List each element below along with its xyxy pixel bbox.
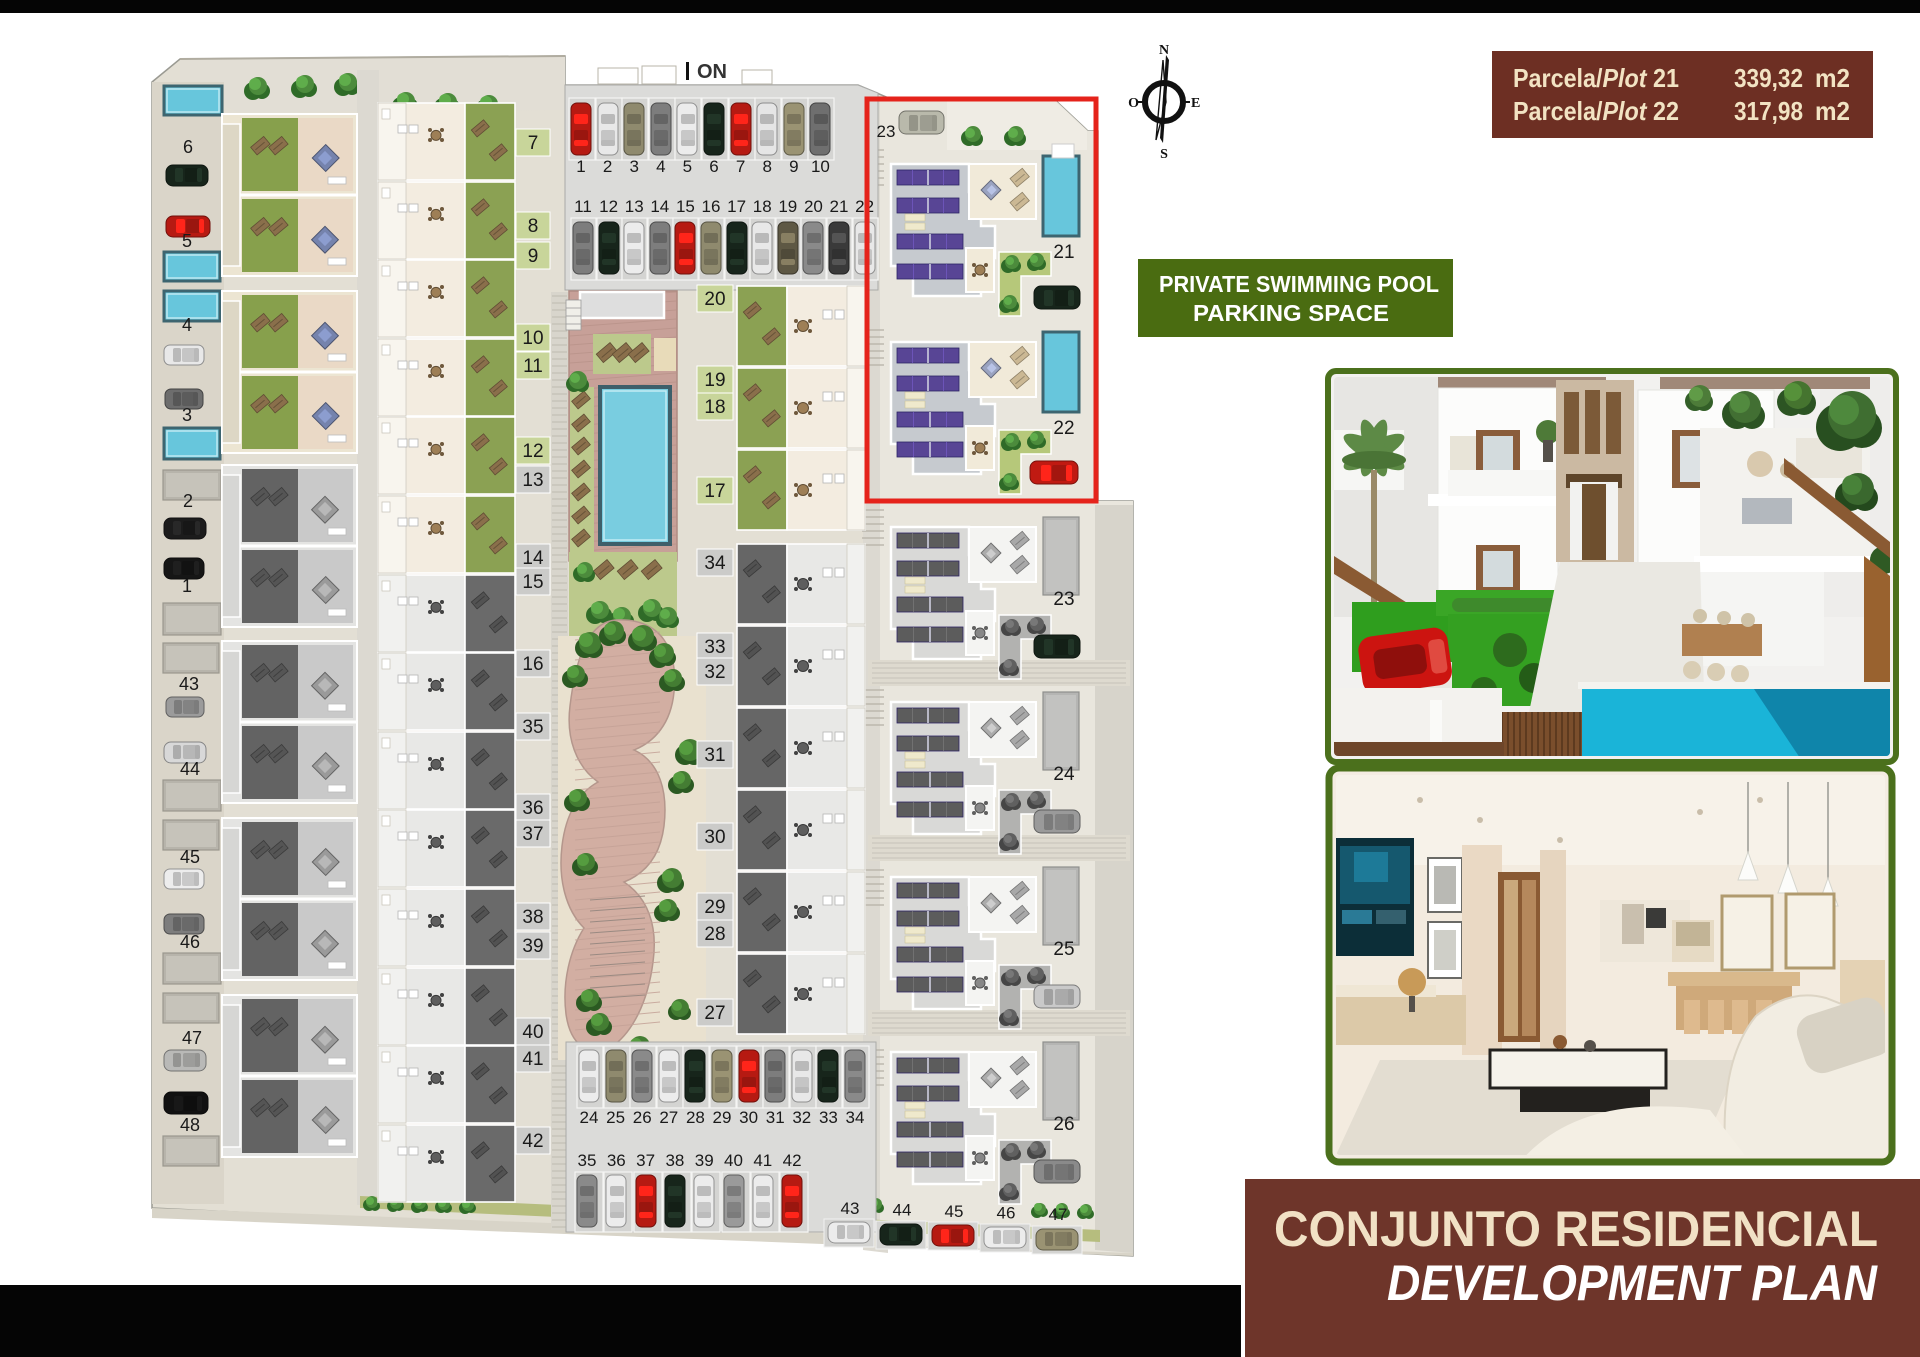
svg-text:11: 11 [574, 197, 592, 216]
svg-text:25: 25 [1053, 939, 1074, 960]
svg-text:5: 5 [683, 157, 692, 176]
svg-text:32: 32 [704, 662, 725, 683]
svg-text:339,32: 339,32 [1734, 63, 1803, 93]
svg-text:Parcela/Plot 22: Parcela/Plot 22 [1513, 96, 1679, 126]
svg-text:29: 29 [713, 1108, 732, 1127]
svg-text:37: 37 [636, 1151, 655, 1170]
svg-text:41: 41 [753, 1151, 772, 1170]
svg-text:33: 33 [704, 637, 725, 658]
svg-text:20: 20 [804, 197, 823, 216]
svg-text:42: 42 [783, 1151, 802, 1170]
svg-text:39: 39 [695, 1151, 714, 1170]
svg-text:22: 22 [1053, 418, 1074, 439]
svg-text:28: 28 [704, 924, 725, 945]
svg-text:12: 12 [599, 197, 618, 216]
svg-text:m2: m2 [1815, 96, 1850, 126]
svg-text:46: 46 [180, 932, 200, 952]
svg-text:44: 44 [180, 759, 200, 779]
svg-text:PARKING SPACE: PARKING SPACE [1193, 300, 1389, 326]
svg-text:25: 25 [606, 1108, 625, 1127]
svg-text:45: 45 [945, 1202, 964, 1221]
svg-text:17: 17 [704, 481, 725, 502]
svg-text:40: 40 [522, 1022, 543, 1043]
svg-text:3: 3 [182, 405, 192, 425]
svg-text:N: N [1159, 43, 1169, 58]
svg-text:6: 6 [709, 157, 718, 176]
svg-text:8: 8 [528, 216, 539, 237]
svg-text:28: 28 [686, 1108, 705, 1127]
svg-text:5: 5 [182, 231, 192, 251]
svg-text:46: 46 [997, 1204, 1016, 1223]
svg-text:4: 4 [656, 157, 665, 176]
svg-text:26: 26 [1053, 1114, 1074, 1135]
svg-text:47: 47 [182, 1028, 202, 1048]
svg-text:16: 16 [522, 654, 543, 675]
svg-text:38: 38 [522, 907, 543, 928]
svg-text:1: 1 [182, 576, 192, 596]
svg-text:9: 9 [789, 157, 798, 176]
svg-text:3: 3 [629, 157, 638, 176]
svg-text:15: 15 [676, 197, 695, 216]
svg-text:30: 30 [739, 1108, 758, 1127]
svg-text:10: 10 [522, 328, 543, 349]
svg-text:32: 32 [792, 1108, 811, 1127]
svg-text:47: 47 [1049, 1205, 1068, 1224]
svg-text:44: 44 [893, 1201, 912, 1220]
svg-text:35: 35 [578, 1151, 597, 1170]
svg-text:ON: ON [697, 61, 727, 83]
svg-text:29: 29 [704, 897, 725, 918]
svg-text:48: 48 [180, 1115, 200, 1135]
svg-text:E: E [1191, 96, 1200, 111]
svg-text:13: 13 [522, 470, 543, 491]
svg-text:6: 6 [183, 137, 193, 157]
svg-text:12: 12 [522, 441, 543, 462]
svg-text:18: 18 [753, 197, 772, 216]
svg-text:Parcela/Plot 21: Parcela/Plot 21 [1513, 63, 1679, 93]
svg-text:19: 19 [704, 370, 725, 391]
svg-text:1: 1 [576, 157, 585, 176]
svg-text:36: 36 [522, 798, 543, 819]
svg-text:45: 45 [180, 847, 200, 867]
svg-text:38: 38 [665, 1151, 684, 1170]
svg-text:36: 36 [607, 1151, 626, 1170]
svg-text:31: 31 [704, 745, 725, 766]
svg-text:30: 30 [704, 827, 725, 848]
svg-text:41: 41 [522, 1049, 543, 1070]
svg-text:m2: m2 [1815, 63, 1850, 93]
svg-text:24: 24 [580, 1108, 599, 1127]
svg-text:27: 27 [659, 1108, 678, 1127]
svg-text:14: 14 [650, 197, 669, 216]
svg-text:15: 15 [522, 572, 543, 593]
svg-text:40: 40 [724, 1151, 743, 1170]
svg-text:9: 9 [528, 246, 539, 267]
svg-text:14: 14 [522, 548, 544, 569]
svg-text:2: 2 [183, 491, 193, 511]
svg-text:11: 11 [523, 356, 543, 377]
svg-text:42: 42 [522, 1131, 543, 1152]
svg-text:43: 43 [179, 674, 199, 694]
svg-text:7: 7 [528, 133, 539, 154]
svg-text:26: 26 [633, 1108, 652, 1127]
svg-text:43: 43 [841, 1199, 860, 1218]
svg-text:37: 37 [522, 824, 543, 845]
svg-text:18: 18 [704, 397, 725, 418]
svg-text:S: S [1160, 147, 1168, 162]
svg-text:23: 23 [1053, 589, 1074, 610]
svg-text:CONJUNTO RESIDENCIAL: CONJUNTO RESIDENCIAL [1274, 1201, 1878, 1257]
svg-text:34: 34 [704, 553, 726, 574]
svg-text:21: 21 [1053, 242, 1074, 263]
svg-text:39: 39 [522, 936, 543, 957]
svg-text:O: O [1128, 96, 1139, 111]
svg-text:35: 35 [522, 717, 543, 738]
svg-text:16: 16 [702, 197, 721, 216]
svg-text:24: 24 [1053, 764, 1075, 785]
svg-text:21: 21 [830, 197, 849, 216]
svg-text:13: 13 [625, 197, 644, 216]
svg-text:4: 4 [182, 315, 192, 335]
svg-text:23: 23 [877, 122, 896, 141]
svg-text:DEVELOPMENT PLAN: DEVELOPMENT PLAN [1387, 1255, 1878, 1311]
svg-text:10: 10 [811, 157, 830, 176]
svg-text:8: 8 [762, 157, 771, 176]
svg-text:19: 19 [778, 197, 797, 216]
svg-text:34: 34 [846, 1108, 865, 1127]
svg-text:17: 17 [727, 197, 746, 216]
svg-text:33: 33 [819, 1108, 838, 1127]
svg-text:7: 7 [736, 157, 745, 176]
svg-text:20: 20 [704, 289, 725, 310]
svg-text:317,98: 317,98 [1734, 96, 1803, 126]
svg-text:27: 27 [704, 1003, 725, 1024]
svg-text:31: 31 [766, 1108, 785, 1127]
svg-text:2: 2 [603, 157, 612, 176]
svg-text:PRIVATE SWIMMING POOL: PRIVATE SWIMMING POOL [1159, 271, 1439, 297]
